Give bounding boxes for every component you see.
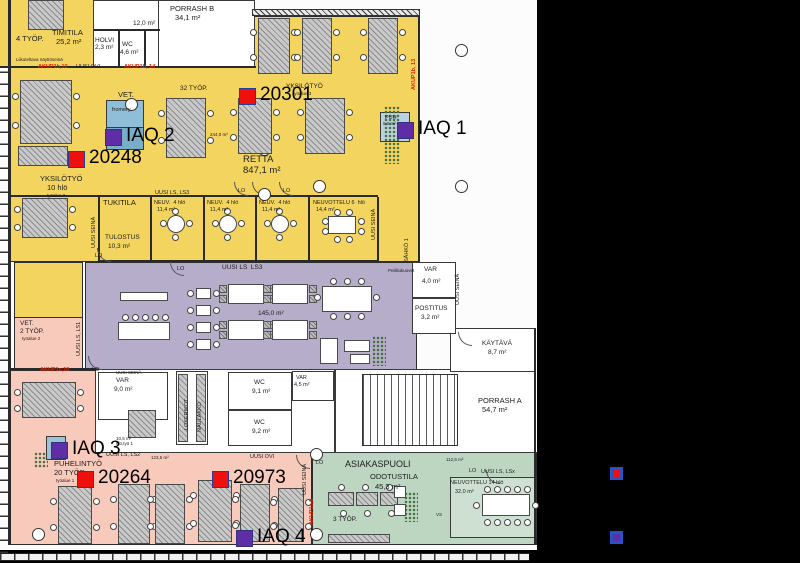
plan-label: 8,7 m² bbox=[488, 349, 506, 356]
furniture-desk-pod-1 bbox=[258, 18, 290, 74]
room-wc-holvi-block bbox=[93, 0, 160, 68]
furniture-desk-pod-14 bbox=[155, 484, 185, 544]
dim-ticks-left bbox=[0, 8, 8, 553]
plan-label: 2,3 m² bbox=[95, 44, 113, 51]
sensor-marker-20248: 20248 bbox=[68, 151, 142, 169]
long-table-chair-3 bbox=[330, 313, 337, 320]
iaq-square-icon bbox=[51, 442, 68, 459]
n14-chair-bot-3 bbox=[514, 519, 521, 526]
chair-dot-5-0 bbox=[158, 110, 165, 117]
chair-dot-16-1 bbox=[232, 522, 239, 529]
furniture-desk-pod-8 bbox=[18, 146, 68, 166]
lounge-stool-4 bbox=[162, 314, 169, 321]
neuvottelu6-chair-6 bbox=[334, 236, 341, 243]
furniture-desk-pod-12 bbox=[58, 486, 92, 544]
plan-label: 9,2 m² bbox=[252, 428, 270, 435]
n14-chair-top-4 bbox=[524, 486, 531, 493]
plan-label: 4,5 m² bbox=[294, 382, 310, 388]
wall-top-hatched bbox=[252, 9, 420, 16]
plan-label: 145,0 m² bbox=[258, 310, 284, 317]
n14-chair-top-3 bbox=[514, 486, 521, 493]
chair-dot-14-1 bbox=[147, 523, 154, 530]
n14-chair-bot-2 bbox=[504, 519, 511, 526]
reception-counter-0 bbox=[328, 492, 354, 506]
plan-label: 5,0 m² bbox=[383, 121, 396, 126]
chair-dot-9-2 bbox=[69, 206, 76, 213]
column-8 bbox=[32, 528, 45, 541]
plan-label: VAR bbox=[424, 266, 437, 273]
long-table-chair-7 bbox=[373, 294, 380, 301]
reception-chair-1 bbox=[362, 484, 369, 491]
plan-label: UUSI LS, LS3 bbox=[155, 190, 189, 196]
plan-label: UUSI SEINÄ bbox=[91, 217, 97, 248]
plan-label: 11,4 m² bbox=[262, 207, 280, 213]
reception-chair-0 bbox=[338, 484, 345, 491]
neuvottelu6-chair-4 bbox=[334, 209, 341, 216]
plan-label: AKUP1c,10 bbox=[40, 367, 69, 373]
meeting-chair-1-3 bbox=[224, 234, 231, 241]
plan-label: UUSI SEINÄ bbox=[116, 370, 142, 375]
wall-neuv-bottom bbox=[98, 260, 379, 262]
furniture-desk-pod-15 bbox=[198, 480, 232, 542]
legend-sensor-swatch bbox=[610, 467, 623, 480]
wall-neuv-divider-3 bbox=[308, 197, 310, 262]
lounge-sofa-3 bbox=[350, 354, 370, 364]
plant-lounge bbox=[372, 336, 386, 366]
plan-label: TUKITILA bbox=[103, 199, 136, 208]
plan-label: 2 TYÖP. bbox=[20, 328, 44, 335]
plan-label: 3 TYÖP. bbox=[333, 516, 357, 523]
marker-label: IAQ 4 bbox=[257, 526, 306, 548]
wall-neuv-divider-1 bbox=[203, 197, 205, 262]
chair-dot-9-0 bbox=[14, 206, 21, 213]
furniture-desk-pod-0 bbox=[28, 0, 64, 30]
iaq-square-icon bbox=[236, 530, 253, 547]
meeting-table-round-1 bbox=[219, 215, 237, 233]
sensor-marker-20973: 20973 bbox=[212, 471, 286, 489]
n14-chair-top-0 bbox=[484, 486, 491, 493]
neuvottelu6-chair-2 bbox=[358, 218, 365, 225]
plan-label: ASIAKASPUOLI bbox=[345, 459, 411, 469]
room-lounge-yellow bbox=[14, 262, 83, 318]
long-table-chair-0 bbox=[330, 278, 337, 285]
marker-label: IAQ 1 bbox=[418, 118, 467, 140]
lounge-stool-3 bbox=[152, 314, 159, 321]
lounge-stool-0 bbox=[122, 314, 129, 321]
marker-label: 20264 bbox=[98, 467, 151, 489]
lounge-small-table-0 bbox=[196, 288, 211, 299]
stairs-porras-a bbox=[362, 374, 458, 446]
plan-label: AKUP1c,9 bbox=[309, 499, 315, 525]
plan-label: 9,0 m² bbox=[114, 386, 132, 393]
lounge-chair-0-0 bbox=[219, 285, 227, 293]
plan-label: NEUVOTTELU 6 hlö bbox=[313, 200, 365, 206]
plan-label: NEUV. 4 hlö bbox=[207, 200, 238, 206]
lounge-small-table-1 bbox=[196, 305, 211, 316]
neuvottelu6-chair-3 bbox=[358, 228, 365, 235]
lounge-st-chair-l1 bbox=[187, 307, 194, 314]
plan-label: AKUP1b, 13 bbox=[411, 59, 417, 90]
plan-label: UUSI OVI bbox=[76, 64, 100, 70]
plan-label: UUSI SEINÄ bbox=[302, 464, 308, 495]
plan-label: 847,1 m² bbox=[243, 166, 281, 177]
long-table-chair-5 bbox=[358, 313, 365, 320]
meeting-chair-0-0 bbox=[160, 220, 167, 227]
chair-dot-9-3 bbox=[69, 224, 76, 231]
furniture-desk-pod-2 bbox=[302, 18, 332, 74]
lounge-long-table bbox=[322, 286, 372, 312]
chair-dot-4-3 bbox=[73, 122, 80, 129]
meeting-chair-1-0 bbox=[212, 220, 219, 227]
plan-label: VAR bbox=[116, 377, 129, 384]
lounge-chair-3-1 bbox=[263, 331, 271, 339]
floor-plan-viewer: PORRASH B34,1 m²12,0 m²4 TYÖP.TIMITILA25… bbox=[0, 0, 800, 563]
chair-dot-13-1 bbox=[110, 523, 117, 530]
plan-label: UUSI LS, LS1 bbox=[76, 322, 82, 356]
lounge-chair-2-0 bbox=[219, 321, 227, 329]
lounge-stool-2 bbox=[142, 314, 149, 321]
plan-label: työalue 2 bbox=[47, 193, 65, 198]
plan-label: 9,1 m² bbox=[252, 388, 270, 395]
lounge-chair-3-2 bbox=[309, 321, 317, 329]
n14-chair-top-2 bbox=[504, 486, 511, 493]
furniture-desk-pod-10 bbox=[22, 382, 76, 418]
n14-chair-left bbox=[473, 502, 480, 509]
floor-plan: PORRASH B34,1 m²12,0 m²4 TYÖP.TIMITILA25… bbox=[0, 0, 537, 550]
chair-dot-4-2 bbox=[73, 93, 80, 100]
plan-label: ODOTUSTILA bbox=[370, 473, 418, 482]
iaq-marker-IAQ-4: IAQ 4 bbox=[236, 530, 306, 548]
plan-label: VET. bbox=[118, 91, 134, 100]
plan-label: POSTITUS bbox=[415, 305, 448, 312]
plan-label: Liikuteltava näyttöseinä bbox=[16, 57, 63, 62]
plan-label: NEUV. 4 hlö bbox=[154, 200, 185, 206]
plan-label: TULOSTUS bbox=[105, 234, 140, 241]
lounge-st-chair-l2 bbox=[187, 324, 194, 331]
furniture-desk-pod-7 bbox=[305, 98, 345, 154]
vs-box-2 bbox=[394, 504, 406, 516]
sensor-square-icon bbox=[239, 88, 256, 105]
lounge-small-table-2 bbox=[196, 322, 211, 333]
plan-label: VS bbox=[436, 512, 442, 517]
marker-label: 20973 bbox=[233, 467, 286, 489]
lounge-chair-2-1 bbox=[219, 331, 227, 339]
neuvottelu6-chair-5 bbox=[346, 209, 353, 216]
chair-dot-5-3 bbox=[207, 137, 214, 144]
plan-label: UUSI OVI bbox=[250, 454, 274, 460]
plan-label: 14,4 m² bbox=[316, 207, 335, 213]
wall-right-lower bbox=[534, 328, 536, 545]
plan-label: 112,5 m² bbox=[446, 457, 463, 462]
plan-label: 12,0 m² bbox=[133, 20, 155, 27]
n14-chair-top-1 bbox=[494, 486, 501, 493]
neuvottelu14-table bbox=[482, 494, 530, 516]
chair-dot-4-1 bbox=[12, 122, 19, 129]
chair-dot-12-1 bbox=[50, 524, 57, 531]
plan-label: 3,2 m² bbox=[421, 314, 439, 321]
iaq-marker-IAQ-3: IAQ 3 bbox=[51, 442, 121, 460]
column-1 bbox=[455, 44, 468, 57]
lounge-chair-1-1 bbox=[263, 295, 271, 303]
plan-label: WC bbox=[254, 379, 265, 386]
plan-label: 10,3 m² bbox=[108, 243, 130, 250]
long-table-chair-2 bbox=[358, 278, 365, 285]
plan-label: fromery bbox=[112, 107, 131, 113]
neuvottelu6-chair-0 bbox=[322, 218, 329, 225]
chair-dot-12-0 bbox=[50, 498, 57, 505]
lounge-table-2 bbox=[228, 320, 264, 340]
lounge-st-chair-r3 bbox=[213, 341, 220, 348]
sensor-marker-20301: 20301 bbox=[239, 88, 313, 106]
lounge-sofa-2 bbox=[344, 340, 370, 352]
n14-chair-right bbox=[532, 502, 539, 509]
plan-label: UUSI SEINÄ bbox=[371, 209, 377, 240]
wall-holvi-h bbox=[93, 29, 160, 31]
chair-dot-14-0 bbox=[147, 496, 154, 503]
meeting-table-round-2 bbox=[271, 215, 289, 233]
lounge-chair-3-0 bbox=[263, 321, 271, 329]
sensor-square-icon bbox=[77, 471, 94, 488]
lounge-counter bbox=[120, 292, 168, 301]
wall-wc-v bbox=[144, 30, 146, 68]
wall-left bbox=[8, 0, 11, 545]
meeting-chair-0-3 bbox=[172, 234, 179, 241]
furniture-desk-pod-11 bbox=[128, 410, 156, 438]
n14-chair-bot-1 bbox=[494, 519, 501, 526]
plan-label: LO bbox=[92, 367, 99, 373]
furniture-desk-pod-13 bbox=[118, 484, 150, 544]
chair-dot-12-3 bbox=[93, 524, 100, 531]
lounge-table-1 bbox=[272, 284, 308, 304]
plan-label: 11,4 m² bbox=[157, 207, 175, 213]
meeting-chair-2-1 bbox=[290, 220, 297, 227]
column-3 bbox=[455, 180, 468, 193]
furniture-desk-pod-4 bbox=[20, 80, 72, 144]
plan-label: AKUP1b, 14 bbox=[124, 64, 155, 70]
plan-label: LO bbox=[177, 266, 184, 272]
plan-label: VET. bbox=[20, 320, 34, 327]
furniture-desk-pod-3 bbox=[368, 18, 398, 74]
plan-label: NEUV. 4 hlö bbox=[259, 200, 290, 206]
marker-label: 20301 bbox=[260, 84, 313, 106]
plan-label: Peililiukuovet bbox=[388, 268, 414, 273]
lounge-table-0 bbox=[228, 284, 264, 304]
chair-dot-17-0 bbox=[270, 499, 277, 506]
plan-label: 4,0 m² bbox=[422, 278, 440, 285]
plan-label: LO bbox=[469, 468, 476, 474]
plan-label: 45,3 m² bbox=[375, 483, 400, 492]
plan-label: LOKERIKOT bbox=[184, 399, 190, 430]
plan-label: NEUVOTTELU 14 hlö bbox=[450, 480, 504, 486]
wall-neuv-divider-0 bbox=[150, 197, 152, 262]
legend-iaq-swatch bbox=[610, 531, 623, 544]
iaq-marker-IAQ-1: IAQ 1 bbox=[397, 122, 467, 140]
chair-dot-4-0 bbox=[12, 93, 19, 100]
plan-label: WC bbox=[122, 41, 133, 48]
plan-label: AKUP1b,10 bbox=[38, 64, 68, 70]
plan-label: 123,5 m² bbox=[151, 455, 169, 460]
sensor-marker-20264: 20264 bbox=[77, 471, 151, 489]
plan-label: LO bbox=[283, 188, 290, 194]
sensor-square-icon bbox=[68, 151, 85, 168]
iaq-square-icon bbox=[397, 122, 414, 139]
lounge-chair-1-2 bbox=[309, 285, 317, 293]
meeting-chair-1-1 bbox=[238, 220, 245, 227]
furniture-desk-pod-6 bbox=[238, 98, 272, 154]
lounge-chair-0-1 bbox=[219, 295, 227, 303]
plan-label: UUSI LS LS3 bbox=[222, 264, 262, 271]
plan-label: SÄHKÖ 1 bbox=[404, 238, 410, 262]
n14-chair-bot-0 bbox=[484, 519, 491, 526]
plan-label: NAULAKKO bbox=[197, 402, 203, 432]
plan-label: UUSI SEINÄ bbox=[455, 274, 461, 305]
long-table-chair-6 bbox=[314, 294, 321, 301]
iaq-marker-IAQ-2: IAQ 2 bbox=[105, 129, 175, 147]
chair-dot-13-0 bbox=[110, 496, 117, 503]
lounge-sofa-1 bbox=[320, 338, 338, 364]
lounge-st-chair-l0 bbox=[187, 290, 194, 297]
neuvottelu6-chair-7 bbox=[346, 236, 353, 243]
n14-chair-bot-4 bbox=[524, 519, 531, 526]
chair-dot-5-2 bbox=[207, 110, 214, 117]
plan-label: WC bbox=[254, 419, 265, 426]
lounge-table-3 bbox=[272, 320, 308, 340]
plan-label: työalue 1 bbox=[56, 478, 74, 483]
wall-neuv-divider-2 bbox=[255, 197, 257, 262]
plan-label: 25,2 m² bbox=[56, 38, 81, 47]
furniture-desk-pod-9 bbox=[22, 198, 68, 238]
neuvottelu6-chair-1 bbox=[322, 228, 329, 235]
plan-label: LO bbox=[95, 253, 102, 259]
plan-label: VAR bbox=[296, 375, 307, 381]
iaq-square-icon bbox=[105, 129, 122, 146]
lounge-bench bbox=[118, 322, 170, 340]
reception-counter-1 bbox=[356, 492, 378, 506]
chair-dot-12-2 bbox=[93, 498, 100, 505]
marker-label: IAQ 2 bbox=[126, 125, 175, 147]
long-table-chair-1 bbox=[344, 278, 351, 285]
lounge-st-chair-l3 bbox=[187, 341, 194, 348]
plan-label: 4,6 m² bbox=[120, 49, 138, 56]
plan-label: KÄYTÄVÄ bbox=[482, 340, 512, 347]
meeting-chair-2-3 bbox=[276, 234, 283, 241]
reception-chair-4 bbox=[364, 510, 371, 517]
lounge-chair-3-3 bbox=[309, 331, 317, 339]
plan-label: 4 TYÖP. bbox=[16, 35, 44, 44]
plan-label: 11,4 m² bbox=[210, 207, 228, 213]
wall-bottom bbox=[0, 553, 529, 561]
plan-label: 32 TYÖP. bbox=[180, 85, 208, 92]
meeting-chair-0-1 bbox=[186, 220, 193, 227]
meeting-table-round-0 bbox=[167, 215, 185, 233]
plant-green-area bbox=[404, 492, 418, 522]
green-bench bbox=[328, 534, 390, 543]
lounge-small-table-3 bbox=[196, 339, 211, 350]
meeting-chair-2-0 bbox=[264, 220, 271, 227]
plan-label: 34,1 m² bbox=[175, 14, 200, 23]
plan-label: 54,7 m² bbox=[482, 406, 507, 415]
marker-label: IAQ 3 bbox=[72, 438, 121, 460]
chair-dot-9-1 bbox=[14, 224, 21, 231]
column-7 bbox=[310, 528, 323, 541]
plan-label: 32,0 m² bbox=[455, 489, 474, 495]
plan-label: 10 hlö bbox=[47, 184, 67, 193]
lounge-stool-1 bbox=[132, 314, 139, 321]
plan-label: työalue 2 bbox=[22, 336, 40, 341]
plan-label: LO bbox=[316, 460, 323, 466]
plan-label: 244,0 m² bbox=[210, 132, 228, 137]
lounge-st-chair-r1 bbox=[213, 307, 220, 314]
sensor-square-icon bbox=[212, 471, 229, 488]
marker-label: 20248 bbox=[89, 147, 142, 169]
lounge-chair-1-0 bbox=[263, 285, 271, 293]
plan-label: UUSI LS, LSx bbox=[481, 469, 515, 475]
meeting-table-neuvottelu6 bbox=[328, 216, 356, 234]
chair-dot-16-0 bbox=[232, 496, 239, 503]
column-2 bbox=[313, 180, 326, 193]
long-table-chair-4 bbox=[344, 313, 351, 320]
plan-label: LO bbox=[238, 188, 245, 194]
